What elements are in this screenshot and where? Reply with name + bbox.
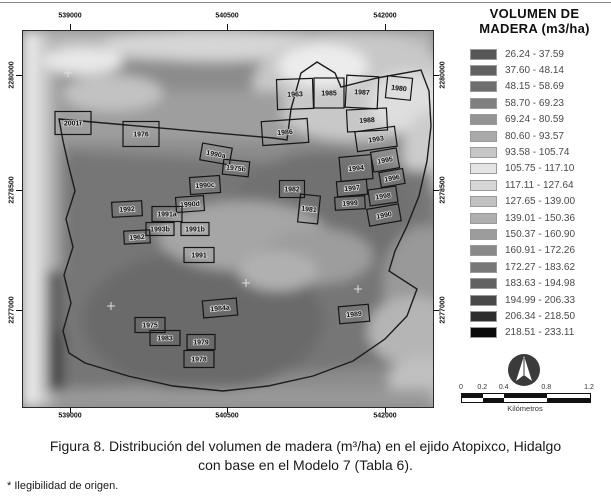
stand-year-label: 2001r — [64, 121, 83, 128]
volume-raster — [23, 31, 433, 407]
stand-year-label: 1978 — [191, 357, 207, 364]
scalebar: 00.20.40.81.2 Kilómetros — [461, 384, 589, 412]
legend-class-row: 194.99 - 206.33 — [470, 292, 575, 308]
legend-class-row: 26.24 - 37.59 — [470, 46, 575, 62]
scalebar-bar — [461, 393, 591, 403]
stand-year-label: 1991a — [157, 212, 177, 219]
figure-page: 1963198519871980198819861993199419951996… — [0, 0, 611, 498]
legend-range-label: 117.11 - 127.64 — [505, 180, 574, 191]
legend-swatch — [470, 327, 497, 338]
legend-class-row: 93.58 - 105.74 — [470, 144, 575, 160]
legend-swatch — [470, 245, 497, 256]
y-axis-label-right: 2280000 — [440, 61, 447, 88]
stand-year-label: 1991 — [191, 253, 207, 260]
legend-swatch — [470, 262, 497, 273]
legend-class-row: 48.15 - 58.69 — [470, 79, 575, 95]
legend-range-label: 93.58 - 105.74 — [505, 147, 570, 158]
legend-range-label: 139.01 - 150.36 — [505, 213, 575, 224]
x-axis-label-top: 539000 — [58, 13, 81, 20]
legend-title: VOLUMEN DE MADERA (m3/ha) — [458, 6, 611, 36]
legend-range-label: 127.65 - 139.00 — [505, 196, 575, 207]
legend-range-label: 194.99 - 206.33 — [505, 295, 575, 306]
stand-year-label: 1962 — [129, 234, 145, 242]
stand-year-label: 1963 — [287, 91, 303, 99]
top-divider — [0, 2, 611, 3]
stand-year-label: 1990d — [180, 201, 200, 209]
stand-year-label: 1979 — [193, 340, 209, 347]
stand-year-label: 1994 — [348, 165, 364, 173]
legend-class-row: 69.24 - 80.59 — [470, 112, 575, 128]
scalebar-tick-label: 1.2 — [584, 384, 594, 391]
legend-range-label: 160.91 - 172.26 — [505, 245, 575, 256]
legend-class-row: 218.51 - 233.11 — [470, 325, 575, 341]
y-axis-label-left: 2280000 — [9, 61, 16, 88]
legend-swatch — [470, 98, 497, 109]
legend-range-label: 150.37 - 160.90 — [505, 229, 575, 240]
x-axis-label-top: 542000 — [373, 13, 396, 20]
figure-caption-line2: con base en el Modelo 7 (Tabla 6). — [0, 457, 611, 473]
legend-title-line2: MADERA (m3/ha) — [479, 21, 590, 36]
axis-tick — [433, 310, 439, 311]
stand-year-label: 1986 — [277, 129, 293, 137]
legend-class-row: 172.27 - 183.62 — [470, 259, 575, 275]
stand-year-label: 1982 — [284, 187, 300, 194]
axis-tick — [16, 310, 22, 311]
legend-range-label: 105.75 - 117.10 — [505, 163, 574, 174]
legend-range-label: 26.24 - 37.59 — [505, 49, 564, 60]
stand-year-label: 1988 — [359, 117, 375, 125]
stand-year-label: 1976 — [133, 132, 149, 139]
x-axis-label-top: 540500 — [215, 13, 238, 20]
legend-class-row: 80.60 - 93.57 — [470, 128, 575, 144]
x-axis-label-bottom: 539000 — [58, 413, 81, 420]
x-axis-label-bottom: 540500 — [215, 413, 238, 420]
scalebar-unit: Kilómetros — [461, 404, 589, 413]
stand-year-label: 1997 — [344, 185, 360, 193]
legend-class-row: 160.91 - 172.26 — [470, 243, 575, 259]
legend-swatch — [470, 311, 497, 322]
figure-footnote: * Ilegibilidad de origen. — [7, 480, 118, 492]
legend-class-row: 127.65 - 139.00 — [470, 194, 575, 210]
legend-swatch — [470, 163, 497, 174]
figure-caption-line1: Figura 8. Distribución del volumen de ma… — [0, 438, 611, 454]
map-legend: VOLUMEN DE MADERA (m3/ha) 26.24 - 37.593… — [458, 6, 611, 36]
legend-range-label: 218.51 - 233.11 — [505, 327, 574, 338]
y-axis-label-right: 2277000 — [440, 296, 447, 323]
legend-range-label: 172.27 - 183.62 — [505, 262, 575, 273]
legend-range-label: 206.34 - 218.50 — [505, 311, 575, 322]
axis-tick — [385, 24, 386, 30]
x-axis-label-bottom: 542000 — [373, 413, 396, 420]
volume-distribution-map: 1963198519871980198819861993199419951996… — [23, 31, 433, 407]
axis-tick — [433, 75, 439, 76]
legend-class-row: 58.70 - 69.23 — [470, 95, 575, 111]
legend-swatch — [470, 114, 497, 125]
legend-class-row: 117.11 - 127.64 — [470, 177, 575, 193]
legend-swatch — [470, 180, 497, 191]
legend-range-label: 80.60 - 93.57 — [505, 131, 564, 142]
axis-tick — [385, 407, 386, 413]
stand-year-label: 1993b — [150, 227, 170, 234]
axis-tick — [227, 407, 228, 413]
stand-year-label: 1992 — [119, 206, 135, 214]
axis-tick — [16, 75, 22, 76]
stand-year-label: 1990c — [195, 182, 215, 190]
axis-tick — [227, 24, 228, 30]
legend-swatch — [470, 49, 497, 60]
legend-swatch — [470, 147, 497, 158]
y-axis-label-right: 2278500 — [440, 176, 447, 203]
scalebar-tick-label: 0.2 — [477, 384, 487, 391]
legend-title-line1: VOLUMEN DE — [490, 6, 580, 21]
stand-year-label: 1987 — [354, 89, 370, 97]
axis-tick — [16, 190, 22, 191]
legend-swatch — [470, 131, 497, 142]
legend-class-row: 150.37 - 160.90 — [470, 226, 575, 242]
axis-tick — [433, 190, 439, 191]
scalebar-tick-label: 0.4 — [499, 384, 509, 391]
legend-class-row: 183.63 - 194.98 — [470, 275, 575, 291]
stand-year-label: 1975 — [142, 323, 158, 330]
legend-range-label: 58.70 - 69.23 — [505, 98, 564, 109]
legend-class-row: 105.75 - 117.10 — [470, 161, 575, 177]
stand-year-label: 1983 — [157, 336, 173, 343]
scalebar-tick-label: 0 — [459, 384, 463, 391]
legend-class-list: 26.24 - 37.5937.60 - 48.1448.15 - 58.695… — [470, 46, 575, 341]
map-frame: 1963198519871980198819861993199419951996… — [22, 30, 434, 408]
legend-class-row: 37.60 - 48.14 — [470, 62, 575, 78]
stand-year-label: 1989 — [346, 311, 362, 319]
legend-range-label: 37.60 - 48.14 — [505, 65, 564, 76]
legend-range-label: 48.15 - 58.69 — [505, 81, 564, 92]
axis-tick — [70, 24, 71, 30]
legend-swatch — [470, 213, 497, 224]
axis-tick — [70, 407, 71, 413]
y-axis-label-left: 2278500 — [9, 176, 16, 203]
stand-year-label: 1985 — [321, 91, 337, 98]
legend-swatch — [470, 196, 497, 207]
legend-range-label: 183.63 - 194.98 — [505, 278, 575, 289]
stand-year-label: 1999 — [342, 200, 358, 208]
stand-year-label: 1991b — [185, 227, 205, 234]
scalebar-tick-label: 0.8 — [541, 384, 551, 391]
y-axis-label-left: 2277000 — [9, 296, 16, 323]
legend-swatch — [470, 229, 497, 240]
legend-range-label: 69.24 - 80.59 — [505, 114, 564, 125]
legend-swatch — [470, 65, 497, 76]
legend-swatch — [470, 295, 497, 306]
legend-class-row: 206.34 - 218.50 — [470, 308, 575, 324]
legend-swatch — [470, 81, 497, 92]
legend-class-row: 139.01 - 150.36 — [470, 210, 575, 226]
legend-swatch — [470, 278, 497, 289]
